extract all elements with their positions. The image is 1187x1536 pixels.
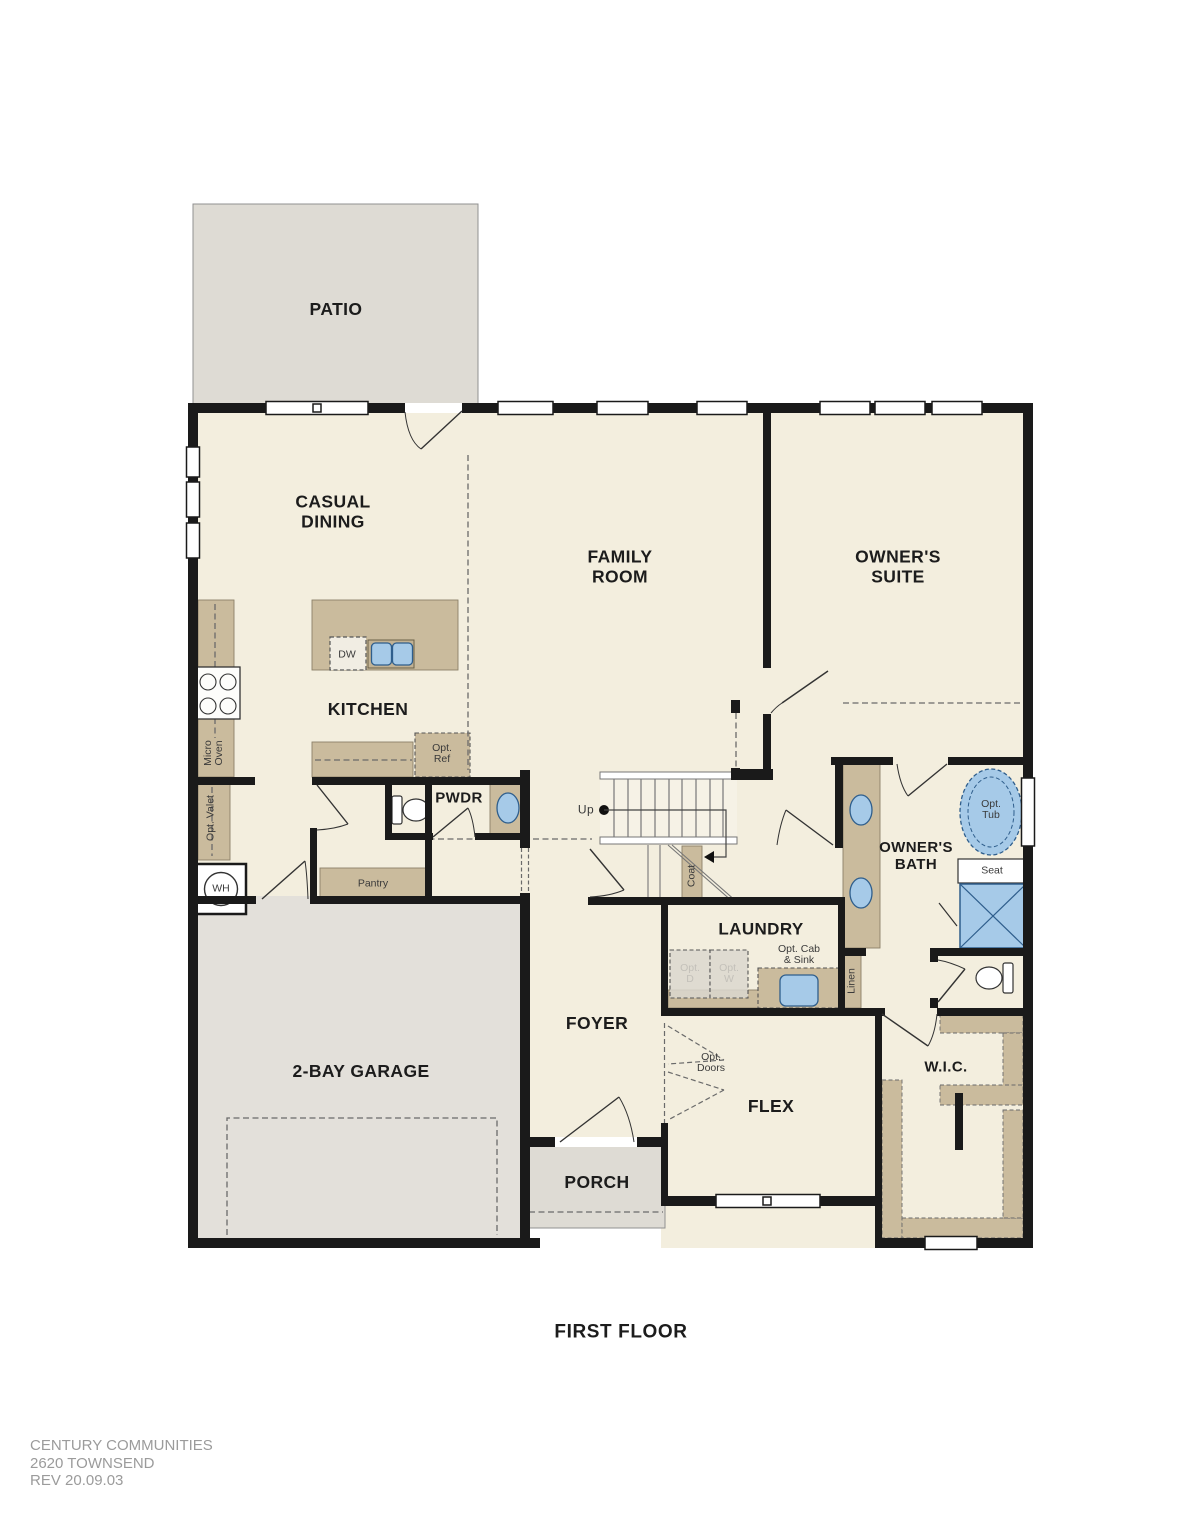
feature-label-linen: Linen (846, 968, 857, 994)
feature-label-opt-d: Opt. D (680, 963, 700, 985)
family-window-1 (498, 402, 553, 415)
feature-label-micro-oven: Micro Oven (203, 740, 225, 766)
shower (960, 884, 1026, 948)
dining-side-window-1 (187, 447, 200, 477)
cooktop (196, 667, 240, 719)
island-sink (368, 640, 414, 668)
footer-plan-name: 2620 TOWNSEND (30, 1455, 213, 1473)
family-window-3 (697, 402, 747, 415)
feature-label-up: Up (578, 803, 594, 816)
feature-label-opt-ref: Opt. Ref (432, 743, 452, 765)
room-label-patio: PATIO (310, 300, 363, 320)
bath-vanity (843, 763, 880, 948)
suite-window-2 (875, 402, 925, 415)
room-label-pwdr: PWDR (435, 791, 482, 808)
dining-side-window-2 (187, 482, 200, 517)
room-label-laundry: LAUNDRY (718, 919, 803, 938)
feature-label-pantry: Pantry (358, 878, 388, 889)
floor-plan: PATIO CASUAL DINING FAMILY ROOM OWNER'S … (0, 0, 1187, 1536)
room-label-family-room: FAMILY ROOM (588, 547, 653, 586)
suite-window-1 (820, 402, 870, 415)
room-label-wic: W.I.C. (924, 1060, 967, 1077)
room-label-porch: PORCH (564, 1173, 629, 1193)
sheet-title: FIRST FLOOR (554, 1321, 687, 1342)
room-label-garage: 2-BAY GARAGE (292, 1062, 429, 1082)
footer: CENTURY COMMUNITIES 2620 TOWNSEND REV 20… (30, 1437, 213, 1490)
patio-door-gap (405, 403, 462, 413)
cased-opening (520, 848, 530, 893)
feature-label-opt-cab-sink: Opt. Cab & Sink (778, 944, 820, 966)
laundry-sink (780, 975, 818, 1006)
bath-window (1022, 778, 1035, 846)
footer-revision: REV 20.09.03 (30, 1472, 213, 1490)
floor-plan-drawing (0, 0, 1187, 1536)
feature-label-opt-w: Opt. W (719, 963, 739, 985)
dining-side-window-3 (187, 523, 200, 558)
room-label-kitchen: KITCHEN (328, 700, 409, 720)
feature-label-opt-tub: Opt. Tub (981, 799, 1001, 821)
feature-label-coat: Coat (686, 865, 697, 887)
room-label-casual-dining: CASUAL DINING (295, 492, 370, 531)
pwdr-sink (497, 793, 519, 823)
front-door-gap (555, 1137, 637, 1147)
feature-label-seat: Seat (981, 865, 1003, 876)
room-label-owners-suite: OWNER'S SUITE (855, 547, 941, 586)
room-label-foyer: FOYER (566, 1014, 628, 1034)
room-label-owners-bath: OWNER'S BATH (879, 840, 953, 874)
wic-window (925, 1237, 977, 1250)
feature-label-dw: DW (338, 649, 356, 660)
feature-label-opt-valet: Opt. Valet (205, 795, 216, 841)
family-window-2 (597, 402, 648, 415)
feature-label-wh: WH (212, 883, 230, 894)
room-label-flex: FLEX (748, 1097, 794, 1117)
footer-company: CENTURY COMMUNITIES (30, 1437, 213, 1455)
suite-window-3 (932, 402, 982, 415)
feature-label-opt-doors: Opt. Doors (697, 1052, 725, 1074)
